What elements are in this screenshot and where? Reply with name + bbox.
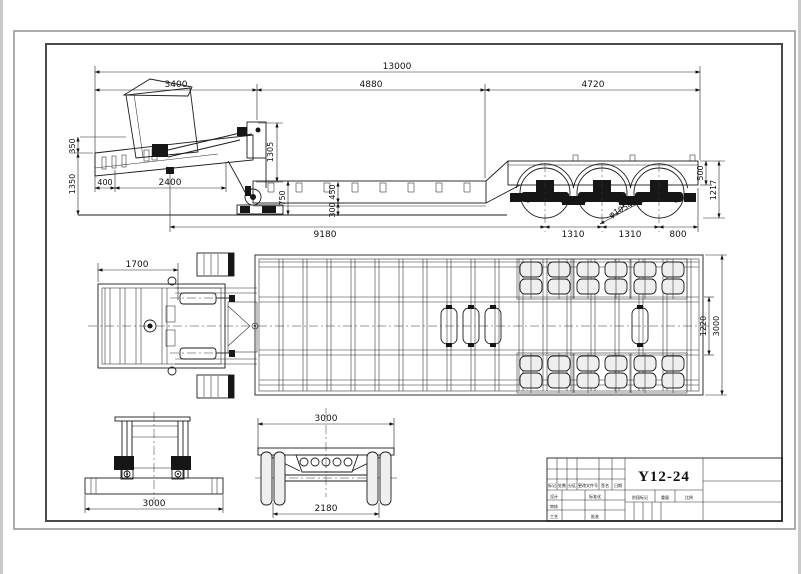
- tb-header-change-doc: 更改文件号: [578, 482, 598, 488]
- dim-front-deck-height: 350: [68, 138, 77, 153]
- plan-tires-axle2-top: [574, 259, 630, 299]
- dim-overall-width: 3000: [712, 316, 721, 336]
- rear-view: 3000 2180: [255, 408, 397, 518]
- dim-overall-length: 13000: [383, 62, 412, 72]
- dim-kingpin-to-bogie: 9180: [314, 230, 337, 240]
- plan-center-marker: [228, 302, 258, 352]
- dim-gooseneck-front: 1700: [126, 260, 149, 270]
- plan-gooseneck: [98, 253, 257, 398]
- dim-rear-overall-width: 3000: [315, 414, 338, 424]
- rear-tire-outer-left: [261, 452, 272, 505]
- plan-view-dimensions: [98, 255, 727, 395]
- tb-weight: 重量: [661, 494, 669, 500]
- tb-process: 工艺: [550, 514, 558, 519]
- dim-rear-height: 1217: [709, 180, 718, 200]
- tb-design: 设计: [550, 493, 558, 499]
- tb-header-count: 处数: [558, 482, 566, 488]
- tb-scale: 比例: [685, 494, 693, 500]
- dim-front-overall-width: 3000: [143, 499, 166, 509]
- rear-tire-outer-right: [380, 452, 391, 505]
- drawing-number: Y12-24: [638, 469, 690, 485]
- plan-view: 1700 1220 3000: [88, 253, 727, 398]
- front-bracket-left: [114, 456, 134, 470]
- dim-rear-frame-depth: 500: [696, 165, 705, 180]
- front-bracket-right: [171, 456, 191, 470]
- side-view-body: [78, 79, 698, 232]
- title-block: 标记 处数 分区 更改文件号 签名 日期 设计 标准化 审核 工艺 批准 Y12…: [547, 458, 782, 521]
- dim-axle-space-2: 1310: [619, 230, 642, 240]
- drawing-canvas: 13000 3400 4880 4720 350 1350 400 2400 1…: [0, 0, 801, 574]
- tb-check: 审核: [550, 503, 558, 509]
- side-view: 13000 3400 4880 4720 350 1350 400 2400 1…: [68, 62, 725, 240]
- dim-rear-section: 4720: [582, 80, 605, 90]
- dim-neck-height: 1305: [266, 142, 275, 162]
- plan-tires-axle3-bottom: [631, 353, 687, 393]
- rear-tire-inner-left: [274, 452, 285, 505]
- plan-tires-axle1-bottom: [517, 353, 573, 393]
- plan-tires-axle1-top: [517, 259, 573, 299]
- plan-tires-axle2-bottom: [574, 353, 630, 393]
- dim-overall-height: 1350: [68, 174, 77, 194]
- tb-header-sign: 签名: [601, 482, 609, 488]
- dim-neck-length: 2400: [159, 178, 182, 188]
- tb-header-mark: 标记: [548, 482, 556, 488]
- tb-header-date: 日期: [614, 482, 622, 488]
- tb-standardization: 标准化: [589, 493, 601, 499]
- dim-frame-width: 1220: [699, 316, 708, 336]
- deck-stake-pockets: [268, 183, 470, 192]
- cad-drawing-page: 13000 3400 4880 4720 350 1350 400 2400 1…: [0, 0, 801, 574]
- tb-stage-mark: 阶段标记: [632, 494, 648, 500]
- dim-mid-section: 4880: [360, 80, 383, 90]
- window-edge-left: [0, 0, 3, 574]
- plan-ladder-bottom: [197, 375, 234, 398]
- kingpin: [166, 167, 174, 174]
- front-view: 3000: [85, 412, 223, 513]
- dim-kingpin-setback: 400: [97, 178, 112, 187]
- tb-approve: 批准: [591, 513, 599, 519]
- tb-header-zone: 分区: [568, 482, 576, 488]
- plan-tires-axle3-top: [631, 259, 687, 299]
- dim-axle-space-1: 1310: [562, 230, 585, 240]
- dim-track-width: 2180: [315, 504, 338, 514]
- dim-rear-overhang: 800: [669, 230, 686, 240]
- plan-ladder-top: [197, 253, 234, 276]
- rear-tire-inner-right: [367, 452, 378, 505]
